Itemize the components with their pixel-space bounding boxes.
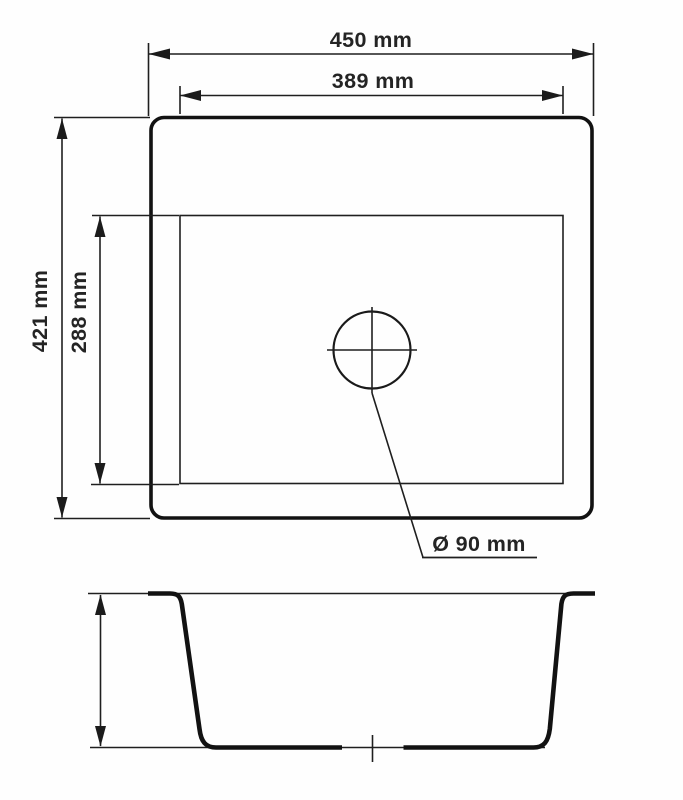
arrowhead-down-icon — [95, 463, 106, 484]
dim-outer-width-label: 450 mm — [330, 28, 412, 52]
arrowhead-left-icon — [180, 90, 201, 101]
arrowhead-right-icon — [542, 90, 563, 101]
dim-inner-depth-label: 288 mm — [67, 271, 91, 353]
sink-top-view: Ø 90 mm 450 mm 389 mm — [28, 28, 594, 558]
arrowhead-left-icon — [149, 49, 171, 60]
drain-diameter-label: Ø 90 mm — [432, 532, 526, 556]
arrowhead-up-icon — [57, 119, 68, 140]
dim-section-height — [95, 595, 106, 747]
sink-section-view — [88, 594, 595, 763]
arrowhead-down-icon — [57, 497, 68, 518]
arrowhead-right-icon — [572, 49, 594, 60]
dim-inner-depth: 288 mm — [67, 216, 179, 485]
section-profile-right — [404, 594, 596, 748]
sink-drawing-svg: Ø 90 mm 450 mm 389 mm — [0, 0, 683, 800]
section-profile-left — [148, 594, 342, 748]
arrowhead-up-icon — [95, 217, 106, 238]
dim-outer-depth-label: 421 mm — [28, 270, 52, 352]
arrowhead-up-icon — [95, 595, 106, 616]
dim-inner-width: 389 mm — [180, 69, 563, 114]
technical-drawing-canvas: Ø 90 mm 450 mm 389 mm — [0, 0, 683, 800]
arrowhead-down-icon — [95, 726, 106, 747]
dim-inner-width-label: 389 mm — [332, 69, 414, 93]
